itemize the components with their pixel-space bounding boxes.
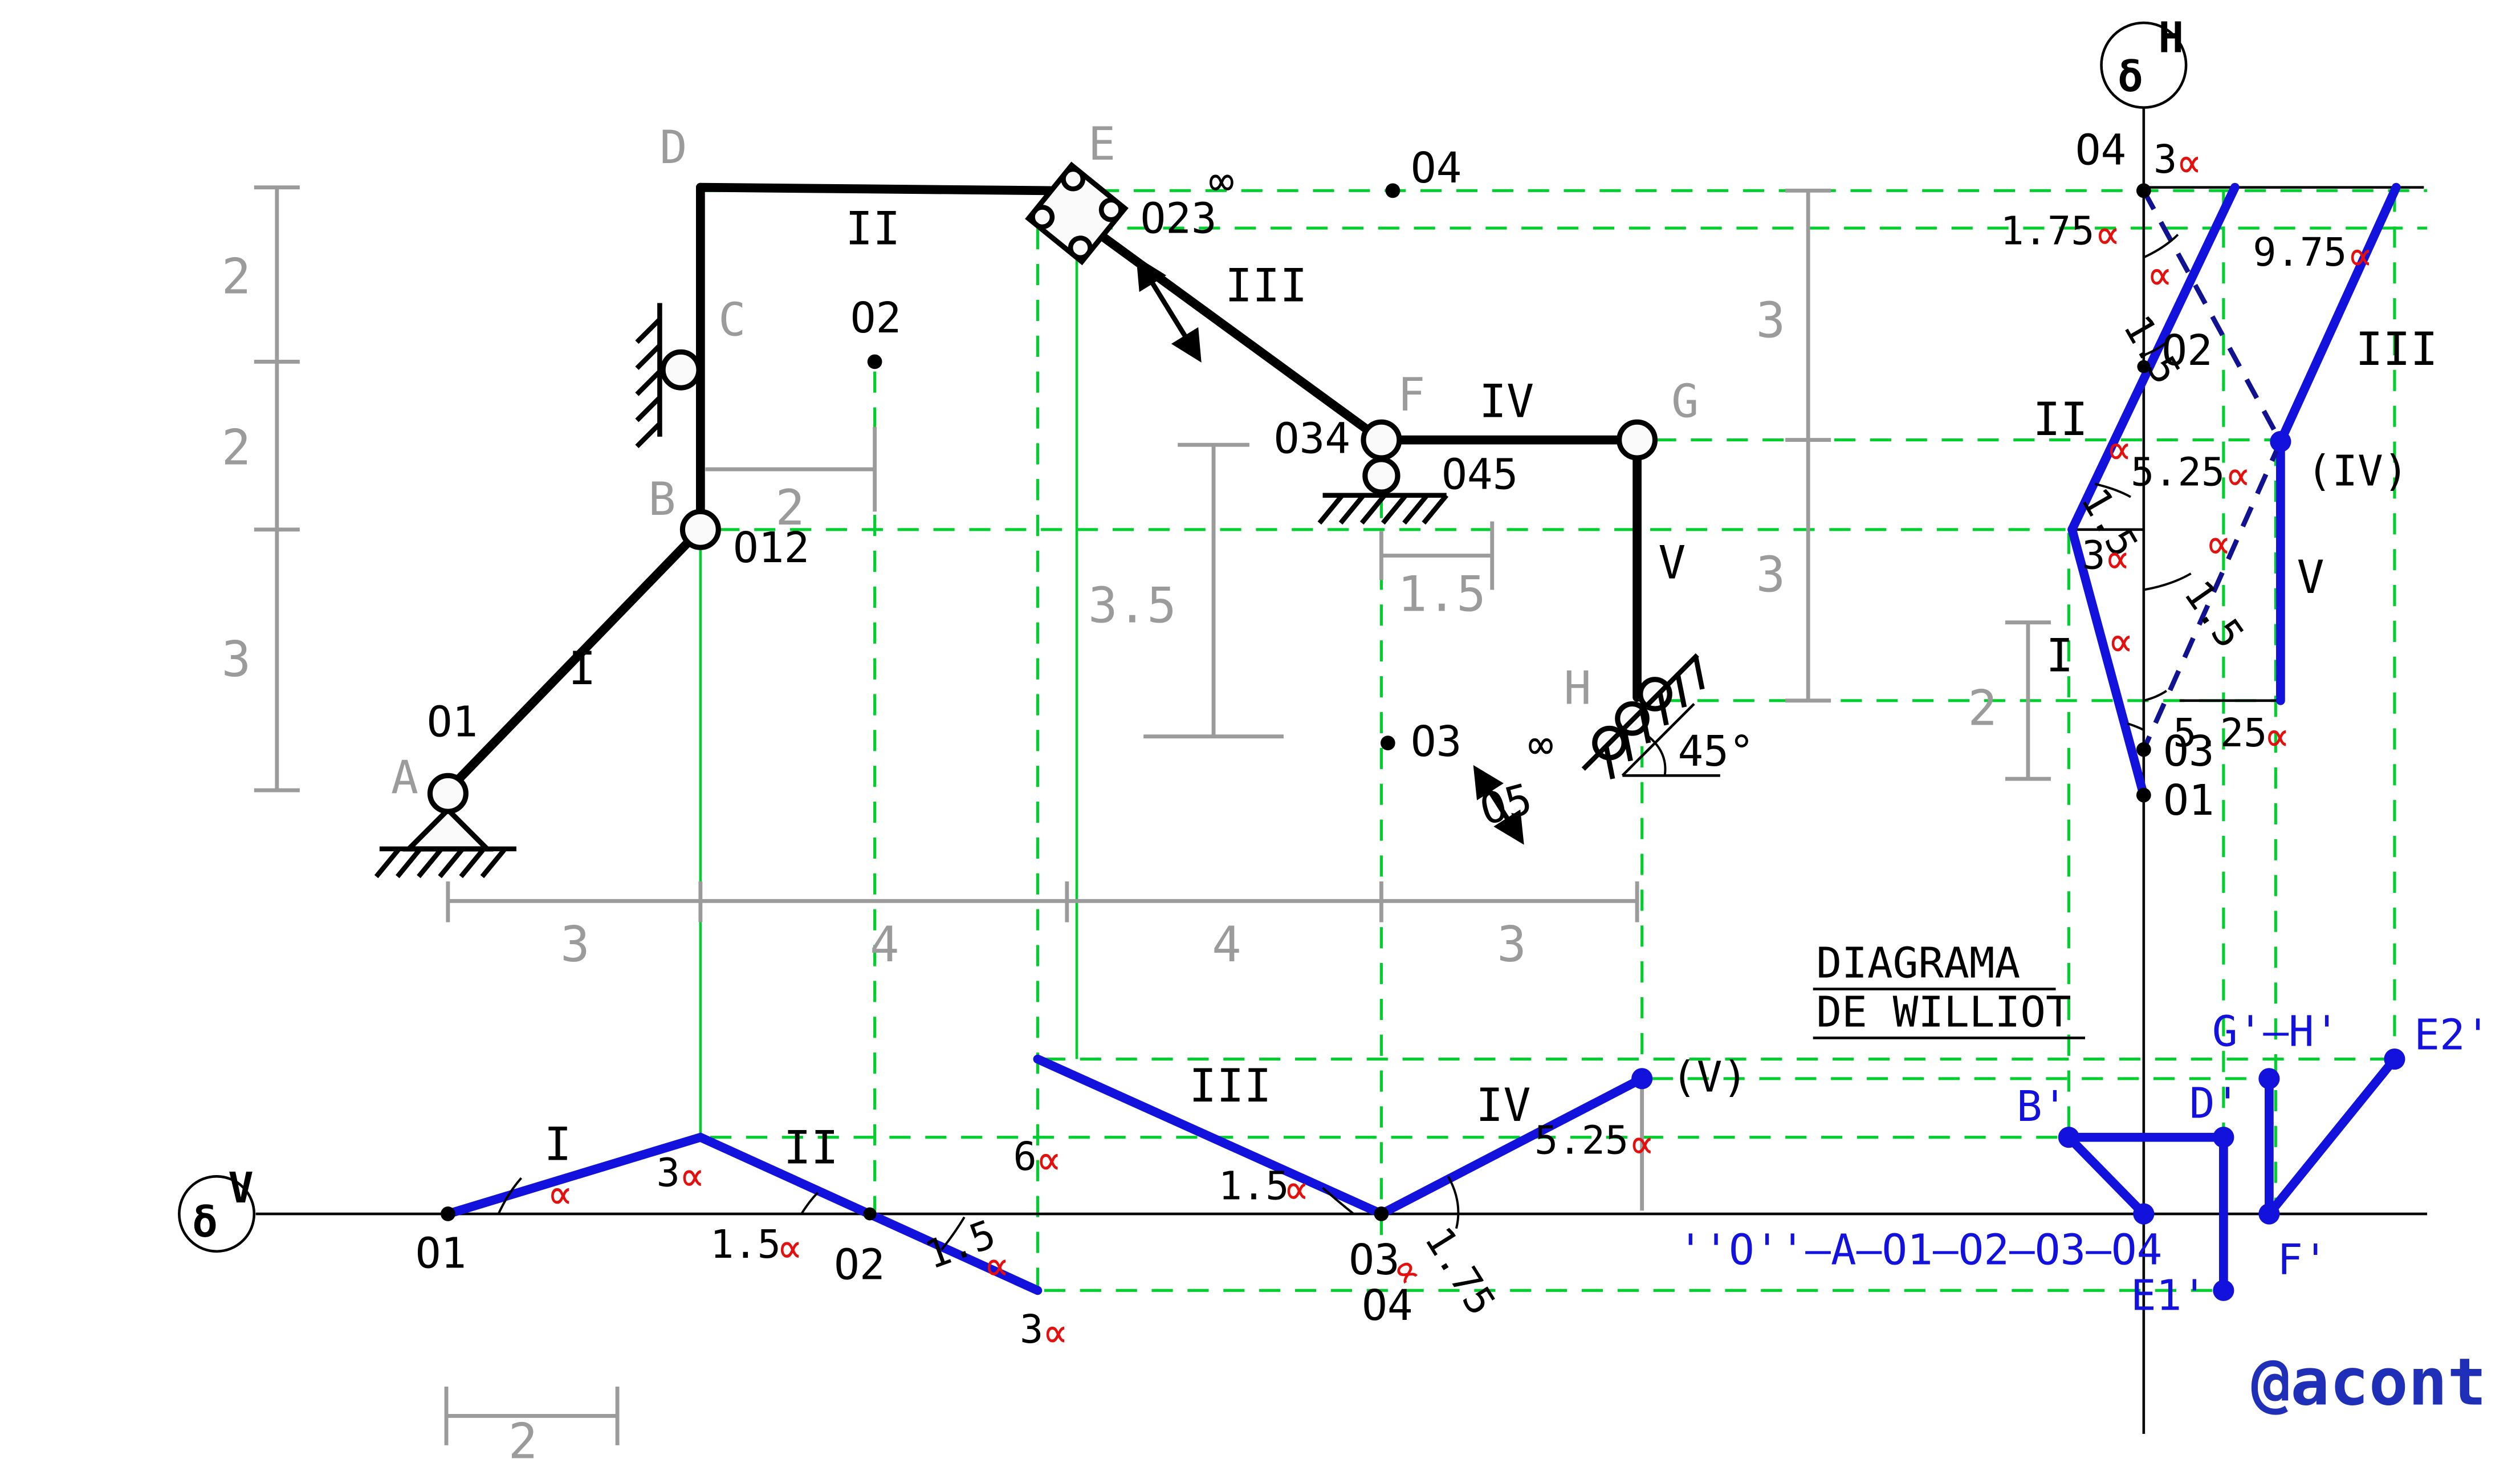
dh-label-iv: (IV) (2307, 446, 2409, 496)
joint-label-c: C (718, 294, 746, 347)
link-label-i: I (568, 642, 596, 695)
dv-dot-o2 (864, 1208, 877, 1221)
title-line1: DIAGRAMA (1816, 938, 2020, 988)
dh-val-3top: 3 (2153, 137, 2177, 182)
pole-label-o45: O45 (1442, 449, 1518, 499)
pole-dot-o3 (1381, 735, 1395, 750)
dv-val-15a: 1.5 (710, 1222, 781, 1267)
dh-alpha-525a: ∝ (2225, 451, 2251, 501)
dh-val-15c: 1.5 (2175, 572, 2253, 656)
dh-val-3: 3 (2082, 533, 2105, 578)
joint-label-d: D (659, 121, 687, 174)
dim-left-2: 2 (222, 419, 251, 476)
dim-left-1: 2 (222, 248, 251, 305)
infinity-o23: ∞ (1208, 156, 1234, 206)
dv-alpha-o1: ∝ (547, 1169, 573, 1219)
link-II (701, 188, 1051, 191)
dh-label-o2: O2 (2161, 326, 2212, 375)
dim-bottom-3: 4 (1212, 916, 1241, 973)
pole-label-o23: O23 (1140, 194, 1216, 243)
dh-val-175: 1.75 (2000, 209, 2094, 254)
dim-bottom-1: 3 (560, 916, 590, 973)
dh-alpha-15a: ∝ (2147, 251, 2173, 300)
delta-v-glyph: δ (192, 1197, 218, 1247)
dh-dot-o1 (2136, 788, 2151, 803)
drawing-canvas: 45° A B C D E F G H I II III IV V O1 O12… (0, 0, 2520, 1463)
wp-label-f: F' (2277, 1235, 2328, 1285)
roller-support-h: 45° (1583, 655, 1754, 779)
dv-val-525: 5.25 (1534, 1117, 1629, 1163)
dv-val-3b: 3 (1020, 1307, 1043, 1352)
delta-h-diagram: O4 3 ∝ 9.75 ∝ 1.75 ∝ 1.5 ∝ O2 II 1.5 ∝ 3… (2000, 125, 2437, 825)
dv-label-iv: IV (1476, 1079, 1530, 1132)
angle-45-label: 45° (1678, 726, 1754, 776)
wp-label-e2: E2' (2414, 1010, 2490, 1059)
joint-label-b: B (648, 473, 675, 526)
wp-dot-origin (2133, 1203, 2154, 1224)
dh-label-i: I (2046, 629, 2073, 682)
dh-dot-o3 (2136, 742, 2151, 757)
wp-dot-e2 (2384, 1049, 2405, 1070)
wp-label-b: B' (2017, 1082, 2067, 1131)
dim-dh-2: 2 (1968, 680, 1997, 737)
dv-label-o4: O4 (1362, 1281, 1412, 1330)
joint-label-f: F (1398, 368, 1425, 421)
hatch-a (376, 849, 505, 877)
dv-dot-o1 (441, 1206, 455, 1221)
link-label-iv: IV (1479, 375, 1534, 428)
joint-label-g: G (1671, 375, 1699, 428)
dv-label-v: (V) (1671, 1052, 1748, 1102)
title-line2: DE WILLIOT (1816, 987, 2071, 1037)
link-label-iii: III (1225, 259, 1308, 312)
delta-h-sup: H (2159, 13, 2184, 62)
link-label-ii: II (845, 202, 900, 255)
dh-val-525a: 5.25 (2131, 450, 2225, 495)
dv-label-iii: III (1189, 1059, 1272, 1112)
dim-f-right: 1.5 (1398, 566, 1486, 623)
dv-dot-o3 (1374, 1206, 1389, 1221)
dim-bottom-4: 3 (1497, 916, 1526, 973)
wp-origin-path: ''O''–A–O1–O2–O3–O4 (1678, 1225, 2163, 1275)
watermark: @acont (2251, 1344, 2486, 1420)
wp-label-gh: G'–H' (2212, 1007, 2340, 1056)
infinity-o5: ∞ (1528, 720, 1554, 770)
dh-alpha-975: ∝ (2347, 231, 2373, 281)
svg-text:1.5: 1.5 (2175, 572, 2253, 656)
pole-label-o3: O3 (1411, 717, 1461, 766)
williot-diagram-svg: 45° A B C D E F G H I II III IV V O1 O12… (0, 0, 2520, 1463)
arrow-o23 (1139, 261, 1199, 358)
dv-dot-v (1631, 1068, 1652, 1089)
dv-alpha-3b: ∝ (1043, 1308, 1068, 1358)
dv-alpha-525: ∝ (1629, 1119, 1655, 1169)
delta-v-sup: V (228, 1163, 254, 1213)
pole-label-o2: O2 (850, 293, 901, 343)
roller-support-c (637, 303, 699, 446)
dh-alpha-15b: ∝ (2106, 425, 2132, 474)
structure: 45° A B C D E F G H I II III IV V O1 O12… (376, 117, 1754, 876)
dh-val-975: 9.75 (2253, 230, 2347, 275)
dh-label-iii: III (2355, 323, 2438, 376)
link-label-v: V (1658, 537, 1686, 590)
dh-alpha-15c: ∝ (2205, 519, 2231, 569)
dh-alpha-175: ∝ (2095, 210, 2120, 259)
dh-alpha-3: ∝ (2104, 534, 2130, 584)
delta-h-glyph: δ (2118, 52, 2143, 101)
wp-dot-e1 (2213, 1280, 2234, 1301)
dv-val-15c: 1.5 (1219, 1163, 1289, 1209)
dim-left-3: 3 (222, 631, 251, 688)
dh-alpha-i: ∝ (2108, 617, 2134, 667)
dh-label-o3: O3 (2163, 726, 2214, 776)
wp-label-d: D' (2189, 1078, 2240, 1128)
joint-label-a: A (391, 751, 418, 804)
dv-label-o2: O2 (834, 1240, 885, 1289)
dh-label-o4: O4 (2075, 125, 2126, 175)
dv-label-i: I (544, 1118, 572, 1171)
pole-dot-o4 (1386, 183, 1401, 198)
pole-label-o4: O4 (1411, 143, 1461, 193)
dh-label-v: V (2297, 551, 2324, 604)
dv-label-ii: II (784, 1121, 838, 1174)
dv-alpha-15a: ∝ (777, 1224, 803, 1273)
dh-dot-o4 (2136, 183, 2151, 198)
pole-label-o1: O1 (427, 697, 478, 747)
dh-dot-iv (2270, 431, 2291, 452)
joint-b (682, 511, 718, 547)
dh-alpha-3top: ∝ (2176, 138, 2202, 188)
hatch-c (637, 319, 659, 446)
dh-line-iii (2281, 188, 2396, 442)
dim-b-o2: 2 (775, 479, 805, 537)
dim-bottom-2: 4 (870, 916, 899, 973)
dh-label-o1: O1 (2163, 775, 2214, 825)
dh-alpha-525b: ∝ (2264, 712, 2290, 761)
dh-label-ii: II (2033, 393, 2088, 446)
dv-alpha-6: ∝ (1036, 1135, 1062, 1185)
wp-dot-f (2258, 1203, 2279, 1224)
hatch-f (1320, 495, 1447, 523)
title-block: DIAGRAMA DE WILLIOT (1813, 938, 2085, 1038)
dim-right-1: 3 (1756, 292, 1786, 350)
wp-dot-gh (2258, 1068, 2279, 1089)
dv-alpha-3a: ∝ (679, 1152, 705, 1201)
wp-dot-d (2213, 1127, 2234, 1148)
dv-alpha-15b: ∝ (984, 1241, 1009, 1291)
pole-dot-o2 (868, 355, 882, 369)
dv-alpha-15c: ∝ (1284, 1165, 1309, 1214)
williot-points: B' D' G'–H' E2' E1' F' ''O''–A–O1–O2–O3–… (1678, 1007, 2491, 1320)
dv-val-6: 6 (1013, 1134, 1037, 1180)
dim-right-2: 3 (1756, 546, 1786, 603)
dim-f-drop: 3.5 (1088, 578, 1176, 635)
dv-val-3a: 3 (657, 1150, 680, 1196)
dim-dv-2: 2 (508, 1413, 538, 1463)
joint-g (1619, 422, 1655, 458)
wp-label-e1: E1' (2131, 1271, 2207, 1320)
delta-v-diagram: O1 I ∝ 3 ∝ II 1.5 ∝ O2 1.5 ∝ 3 ∝ 6 ∝ III… (416, 1052, 1748, 1358)
dv-label-o1: O1 (416, 1228, 466, 1278)
joint-label-e: E (1088, 117, 1116, 170)
pole-label-o34: O34 (1274, 413, 1350, 463)
joint-label-h: H (1564, 662, 1591, 715)
